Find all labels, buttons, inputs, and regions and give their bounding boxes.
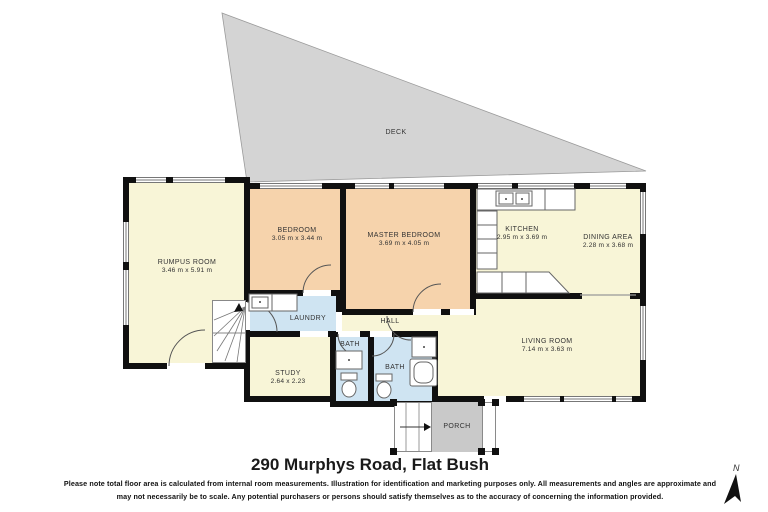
dining-label: DINING AREA 2.28 m x 3.68 m: [558, 233, 658, 251]
bedroom-name: BEDROOM: [247, 226, 347, 235]
porch-post: [492, 448, 499, 455]
window: [518, 183, 574, 189]
porch-post: [492, 399, 499, 406]
window: [123, 222, 129, 262]
study-name: STUDY: [242, 369, 334, 378]
floorplan-canvas: DECK RUMPUS ROOM 3.46 m x 5.91 m BEDROOM…: [0, 0, 768, 512]
rumpus-label: RUMPUS ROOM 3.46 m x 5.91 m: [125, 258, 249, 276]
room-master-bedroom: [340, 183, 476, 315]
page-title: 290 Murphys Road, Flat Bush: [0, 455, 740, 475]
bedroom-label: BEDROOM 3.05 m x 3.44 m: [247, 226, 347, 244]
door-opening: [300, 331, 328, 337]
deck-area: [222, 13, 646, 182]
room-study: [244, 331, 336, 402]
rumpus-dims: 3.46 m x 5.91 m: [125, 267, 249, 276]
kitchen-living-wall: [470, 293, 582, 299]
window: [394, 183, 444, 189]
door-opening: [413, 309, 441, 315]
master-bedroom-dims: 3.69 m x 4.05 m: [336, 240, 472, 249]
laundry-name: LAUNDRY: [258, 314, 358, 323]
window: [136, 177, 166, 183]
disclaimer-line-1: Please note total floor area is calculat…: [20, 479, 760, 488]
bath1-name: BATH: [326, 340, 374, 349]
master-bedroom-label: MASTER BEDROOM 3.69 m x 4.05 m: [336, 231, 472, 249]
window: [564, 396, 612, 402]
window: [640, 192, 646, 234]
living-dims: 7.14 m x 3.63 m: [447, 346, 647, 355]
window: [355, 183, 389, 189]
laundry-label: LAUNDRY: [258, 314, 358, 323]
bedroom-dims: 3.05 m x 3.44 m: [247, 235, 347, 244]
porch-name: PORCH: [432, 422, 482, 431]
hall-name: HALL: [350, 317, 430, 326]
door-opening: [244, 302, 250, 330]
porch-label: PORCH: [432, 422, 482, 431]
dining-dims: 2.28 m x 3.68 m: [558, 242, 658, 251]
north-label: N: [733, 463, 740, 473]
window: [123, 270, 129, 325]
porch-post: [478, 448, 485, 455]
door-opening: [370, 331, 392, 337]
north-arrow-icon: [724, 474, 741, 504]
window: [478, 183, 512, 189]
dining-name: DINING AREA: [558, 233, 658, 242]
disclaimer-line-2: may not necessarily be to scale. Any pot…: [20, 492, 760, 501]
living-label: LIVING ROOM 7.14 m x 3.63 m: [447, 337, 647, 355]
study-label: STUDY 2.64 x 2.23: [242, 369, 334, 387]
hall-label: HALL: [350, 317, 430, 326]
porch-post: [478, 399, 485, 406]
living-name: LIVING ROOM: [447, 337, 647, 346]
porch-post: [390, 399, 397, 406]
porch-rail: [482, 402, 496, 452]
door-opening: [450, 309, 474, 315]
deck-name: DECK: [351, 128, 441, 137]
window: [590, 183, 626, 189]
bath2-label: BATH: [365, 363, 425, 372]
rumpus-name: RUMPUS ROOM: [125, 258, 249, 267]
master-bedroom-name: MASTER BEDROOM: [336, 231, 472, 240]
north-arrow: N: [712, 458, 762, 510]
bath1-label: BATH: [326, 340, 374, 349]
porch-post: [390, 448, 397, 455]
dining-beam-end-wall: [630, 293, 640, 299]
porch-steps: [394, 402, 432, 452]
deck-label: DECK: [351, 128, 441, 137]
door-opening: [338, 331, 360, 337]
window: [616, 396, 632, 402]
window: [173, 177, 225, 183]
door-opening: [303, 290, 331, 296]
study-dims: 2.64 x 2.23: [242, 378, 334, 387]
bath2-name: BATH: [365, 363, 425, 372]
window: [260, 183, 322, 189]
window: [524, 396, 560, 402]
door-opening: [167, 363, 205, 369]
